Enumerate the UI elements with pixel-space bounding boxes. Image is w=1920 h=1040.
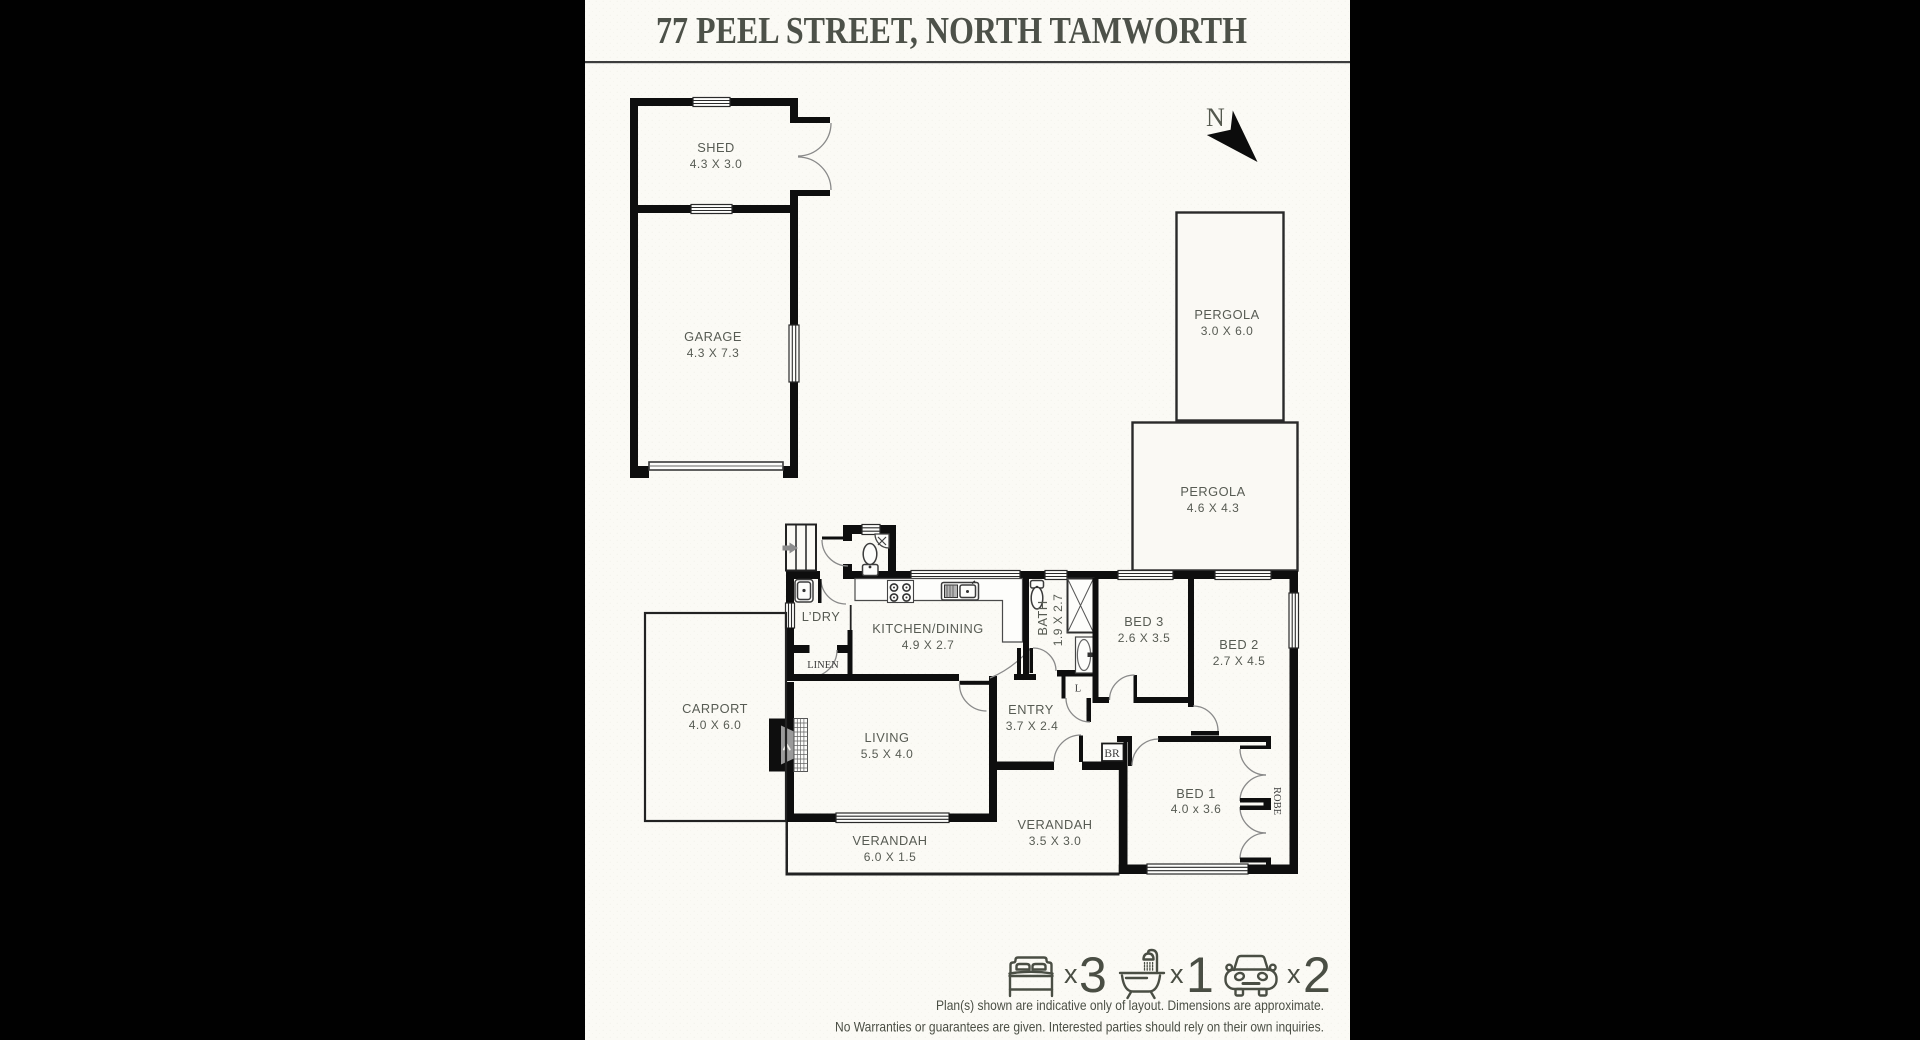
svg-text:4.0 x 3.6: 4.0 x 3.6	[1171, 802, 1222, 816]
svg-text:SHED: SHED	[697, 140, 735, 155]
svg-text:BATH: BATH	[1035, 600, 1050, 635]
svg-text:4.9 X 2.7: 4.9 X 2.7	[902, 638, 955, 652]
svg-text:BED 2: BED 2	[1219, 637, 1259, 652]
svg-text:LINEN: LINEN	[807, 660, 839, 671]
svg-text:N: N	[1206, 103, 1225, 132]
svg-text:4.0 X 6.0: 4.0 X 6.0	[689, 718, 742, 732]
svg-text:77 PEEL STREET, NORTH TAMWORTH: 77 PEEL STREET, NORTH TAMWORTH	[656, 10, 1247, 52]
svg-text:GARAGE: GARAGE	[684, 329, 742, 344]
svg-text:BED 1: BED 1	[1176, 786, 1216, 801]
svg-text:KITCHEN/DINING: KITCHEN/DINING	[872, 621, 984, 636]
svg-text:ENTRY: ENTRY	[1008, 702, 1054, 717]
svg-text:1.9 X 2.7: 1.9 X 2.7	[1051, 594, 1065, 647]
svg-text:3.7 X 2.4: 3.7 X 2.4	[1006, 719, 1059, 733]
svg-text:1: 1	[1186, 947, 1214, 1003]
svg-text:2: 2	[1303, 947, 1331, 1003]
svg-text:2.7 X 4.5: 2.7 X 4.5	[1213, 654, 1266, 668]
svg-text:x: x	[1064, 959, 1078, 989]
svg-text:VERANDAH: VERANDAH	[852, 833, 927, 848]
svg-text:L: L	[1075, 684, 1081, 695]
svg-text:LIVING: LIVING	[865, 730, 910, 745]
svg-text:No Warranties or guarantees ar: No Warranties or guarantees are given. I…	[835, 1019, 1324, 1035]
svg-text:4.6 X 4.3: 4.6 X 4.3	[1187, 501, 1240, 515]
svg-text:x: x	[1170, 959, 1184, 989]
svg-text:VERANDAH: VERANDAH	[1017, 817, 1092, 832]
svg-text:ROBE: ROBE	[1271, 787, 1282, 815]
svg-text:4.3 X 3.0: 4.3 X 3.0	[690, 157, 743, 171]
svg-text:PERGOLA: PERGOLA	[1194, 307, 1259, 322]
svg-text:2.6 X 3.5: 2.6 X 3.5	[1118, 631, 1171, 645]
svg-text:3.5 X 3.0: 3.5 X 3.0	[1029, 834, 1082, 848]
svg-text:PERGOLA: PERGOLA	[1180, 484, 1245, 499]
svg-text:3: 3	[1079, 947, 1107, 1003]
svg-text:6.0 X 1.5: 6.0 X 1.5	[864, 850, 917, 864]
svg-text:4.3 X 7.3: 4.3 X 7.3	[687, 346, 740, 360]
svg-text:Plan(s) shown are indicative o: Plan(s) shown are indicative only of lay…	[936, 997, 1324, 1013]
svg-text:BED 3: BED 3	[1124, 614, 1164, 629]
svg-text:L’DRY: L’DRY	[802, 609, 841, 624]
svg-text:3.0 X 6.0: 3.0 X 6.0	[1201, 324, 1254, 338]
svg-text:x: x	[1287, 959, 1301, 989]
svg-text:CARPORT: CARPORT	[682, 701, 748, 716]
svg-text:5.5 X 4.0: 5.5 X 4.0	[861, 747, 914, 761]
svg-text:BR: BR	[1104, 748, 1120, 760]
